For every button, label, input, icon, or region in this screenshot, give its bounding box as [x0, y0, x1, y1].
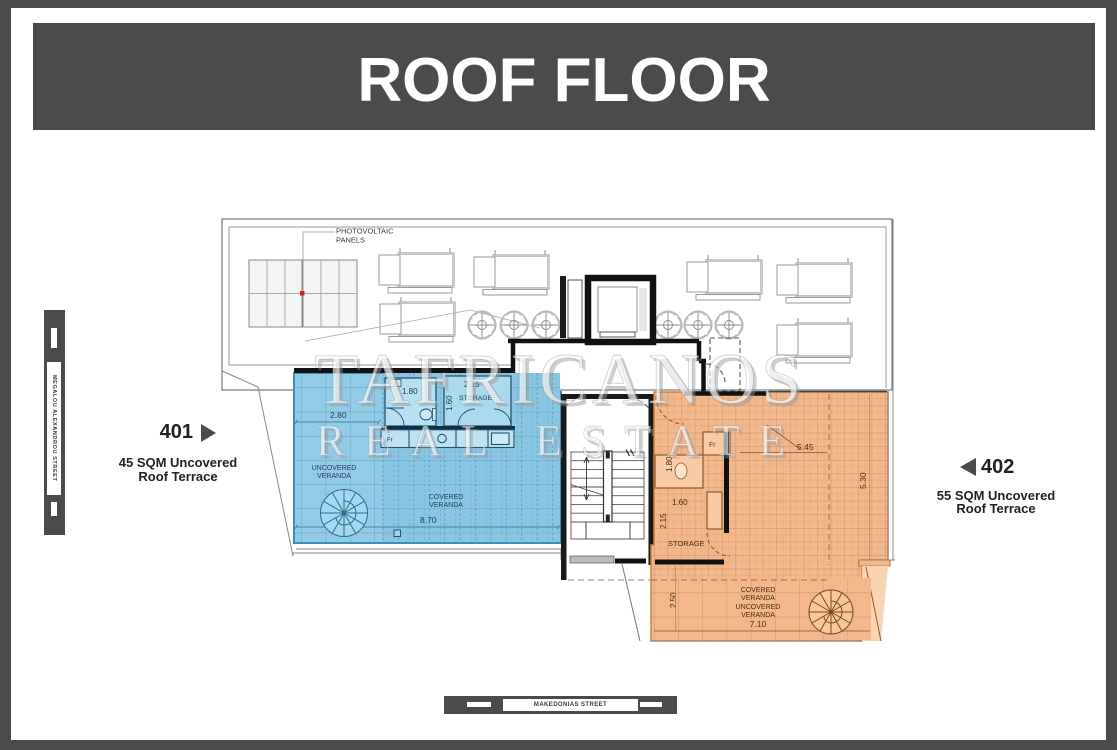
svg-text:2.15: 2.15	[659, 513, 668, 529]
svg-text:8.70: 8.70	[420, 515, 437, 525]
svg-text:VERANDA: VERANDA	[317, 473, 351, 480]
svg-text:PANELS: PANELS	[336, 236, 365, 245]
svg-text:VERANDA: VERANDA	[429, 502, 463, 509]
svg-text:REAL ESTATE: REAL ESTATE	[316, 416, 805, 465]
svg-text:COVERED: COVERED	[429, 494, 464, 501]
svg-text:7.10: 7.10	[750, 619, 767, 629]
svg-text:PHOTOVOLTAIC: PHOTOVOLTAIC	[336, 227, 394, 236]
svg-text:VERANDA: VERANDA	[741, 595, 775, 602]
svg-text:COVERED: COVERED	[741, 587, 776, 594]
svg-text:VERANDA: VERANDA	[741, 612, 775, 619]
svg-text:TAFRICANOS: TAFRICANOS	[314, 339, 805, 419]
svg-text:UNCOVERED: UNCOVERED	[736, 604, 781, 611]
svg-text:1.60: 1.60	[672, 498, 688, 507]
svg-text:STORAGE: STORAGE	[668, 539, 705, 548]
svg-text:2.50: 2.50	[669, 592, 678, 608]
svg-text:5.30: 5.30	[858, 472, 868, 489]
